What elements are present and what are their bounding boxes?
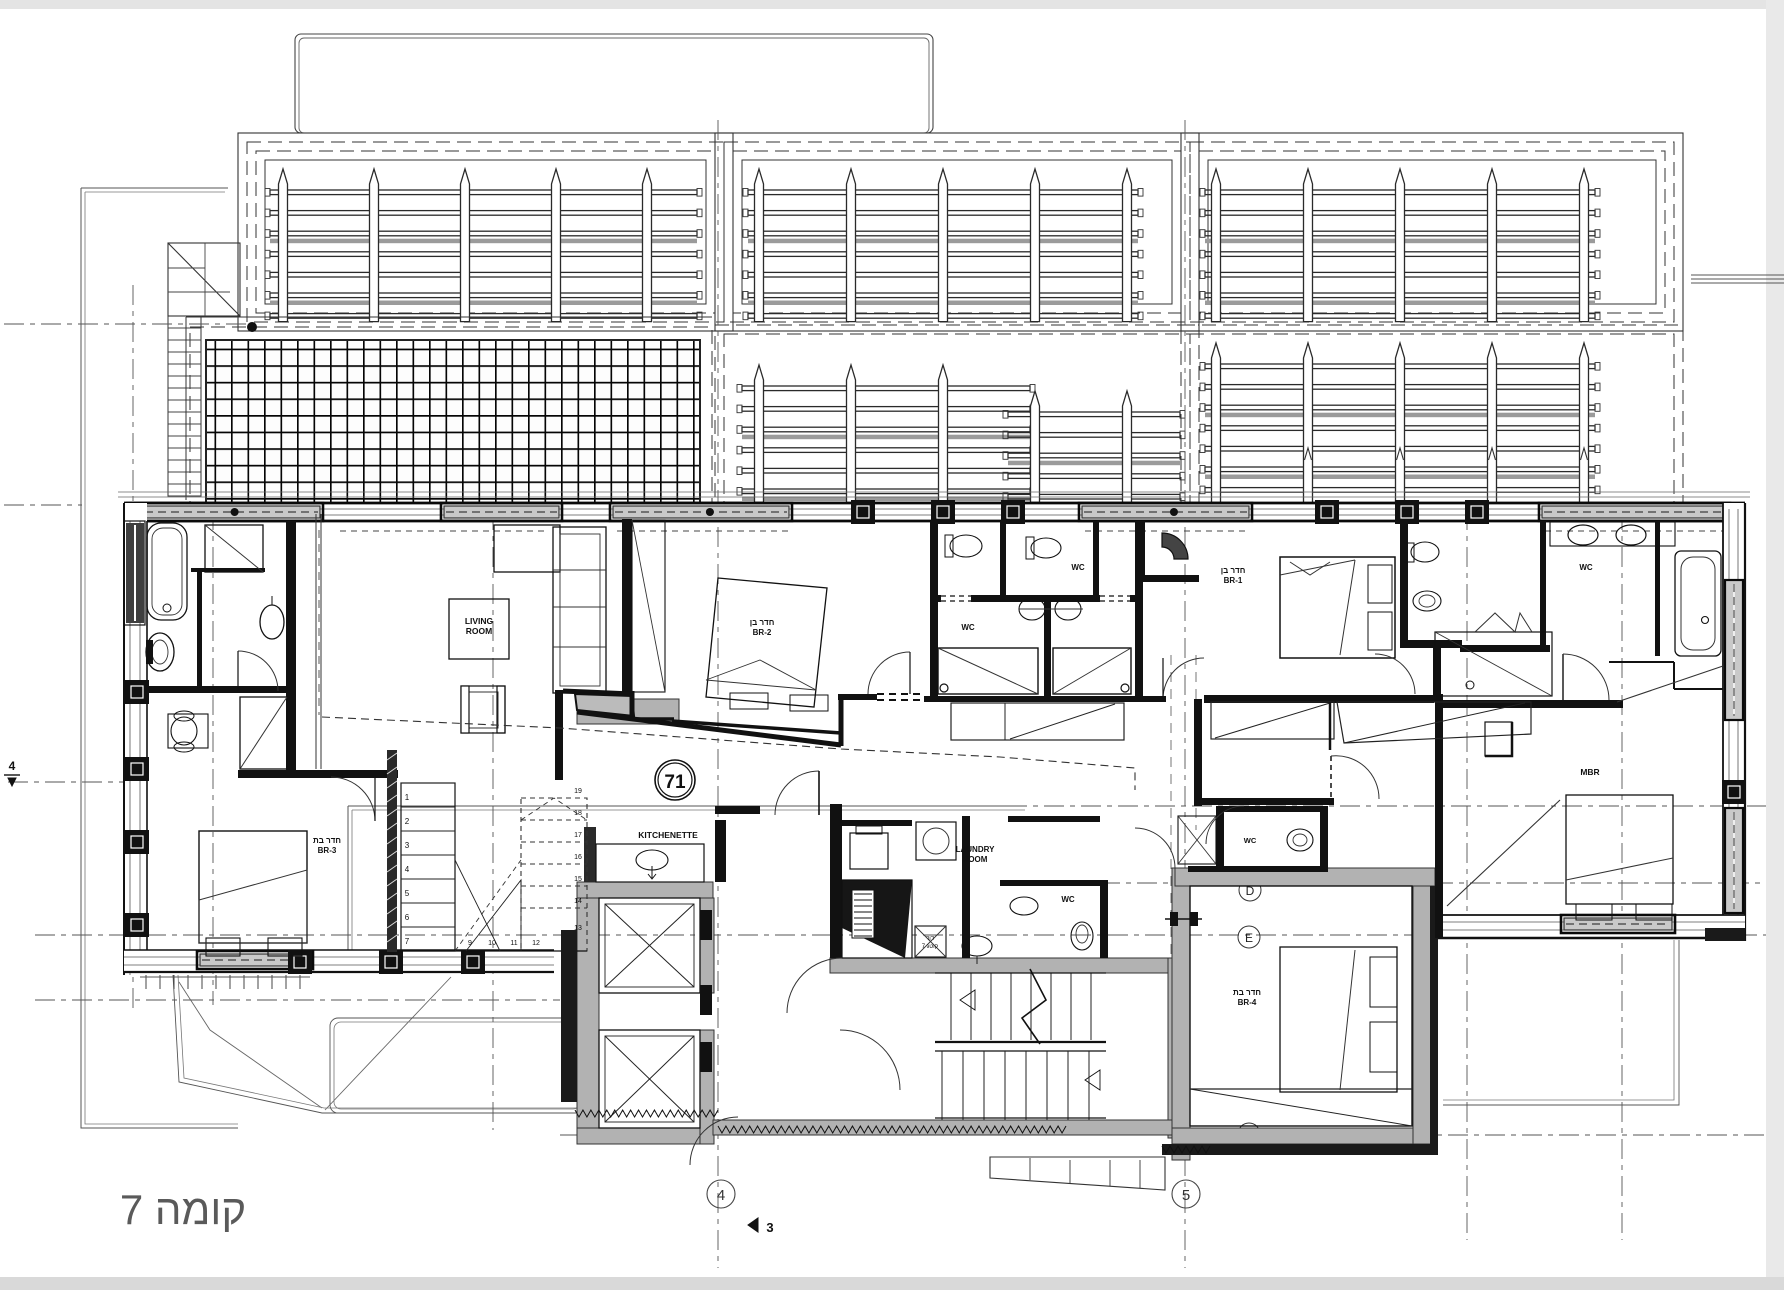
svg-text:15: 15 (574, 876, 582, 883)
svg-text:דוד: דוד (926, 936, 935, 942)
svg-text:1: 1 (405, 793, 410, 802)
svg-text:4: 4 (717, 1187, 725, 1204)
svg-text:19: 19 (574, 788, 582, 795)
svg-text:BR-2: BR-2 (753, 628, 772, 637)
svg-text:BR-4: BR-4 (1238, 998, 1257, 1007)
svg-text:חדר בן: חדר בן (750, 618, 775, 627)
svg-text:9: 9 (468, 940, 472, 947)
svg-text:WC: WC (1061, 895, 1075, 904)
svg-text:17: 17 (574, 832, 582, 839)
svg-text:3: 3 (405, 841, 410, 850)
svg-text:3: 3 (766, 1220, 773, 1235)
svg-text:BR-1: BR-1 (1224, 576, 1243, 585)
svg-text:חדר בת: חדר בת (1233, 988, 1261, 997)
svg-text:18: 18 (574, 810, 582, 817)
svg-text:14: 14 (574, 898, 582, 905)
svg-text:KITCHENETTE: KITCHENETTE (638, 830, 698, 840)
svg-text:11: 11 (510, 940, 517, 947)
svg-text:חדר בן: חדר בן (1221, 566, 1246, 575)
svg-text:5: 5 (1182, 1187, 1190, 1204)
svg-text:2: 2 (405, 817, 410, 826)
svg-text:ROOM: ROOM (466, 626, 492, 636)
svg-text:6: 6 (405, 913, 410, 922)
svg-text:E: E (1245, 931, 1253, 945)
svg-text:71: 71 (664, 772, 686, 793)
svg-text:WC: WC (1244, 836, 1257, 845)
svg-text:4: 4 (9, 759, 16, 773)
svg-text:16: 16 (574, 854, 582, 861)
svg-text:MBR: MBR (1580, 767, 1599, 777)
svg-text:12: 12 (532, 940, 540, 947)
svg-text:7: 7 (405, 937, 410, 946)
svg-text:4: 4 (405, 865, 410, 874)
svg-text:ROOM: ROOM (963, 855, 988, 864)
svg-text:WC: WC (1579, 563, 1593, 572)
svg-text:BR-3: BR-3 (318, 846, 337, 855)
svg-text:WC: WC (1071, 563, 1085, 572)
svg-text:חדר בת: חדר בת (313, 836, 341, 845)
svg-text:10: 10 (488, 940, 496, 947)
svg-text:קומה 7: קומה 7 (120, 1186, 246, 1233)
svg-text:LAUNDRY: LAUNDRY (956, 845, 995, 854)
svg-text:7 קוטג: 7 קוטג (922, 944, 939, 950)
svg-text:WC: WC (961, 623, 975, 632)
svg-text:5: 5 (405, 889, 410, 898)
svg-text:LIVING: LIVING (465, 616, 494, 626)
